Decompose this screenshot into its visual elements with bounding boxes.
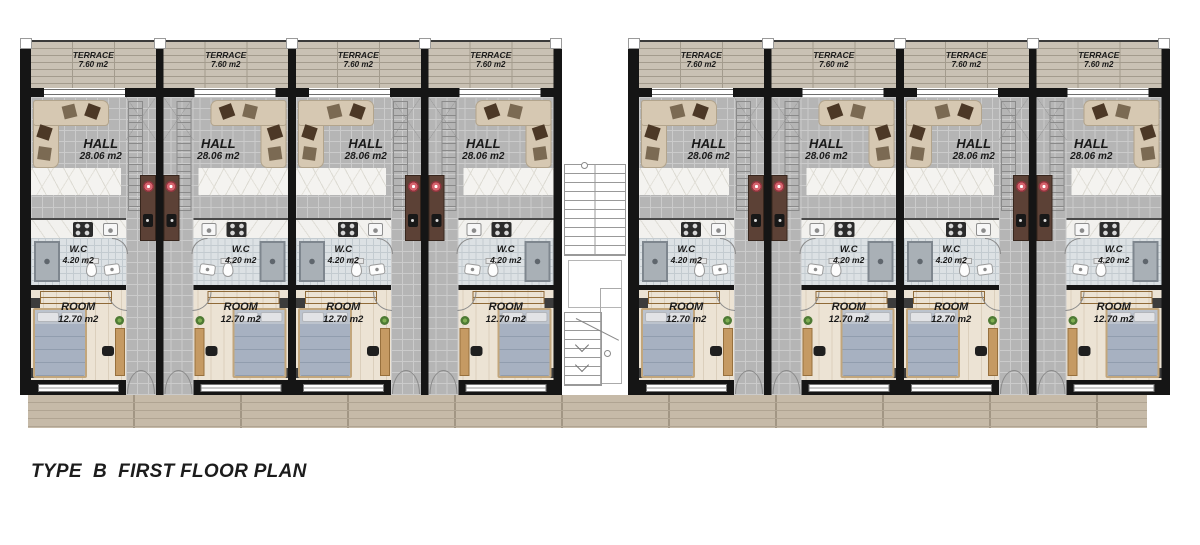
bar-stool-icon <box>166 181 177 192</box>
hall-rug <box>806 168 896 195</box>
sink-icon <box>368 223 383 236</box>
terrace-sliding-door <box>652 89 733 95</box>
washbasin-icon <box>464 263 481 276</box>
terrace-sliding-door <box>309 89 390 95</box>
unit-graphics <box>296 40 421 395</box>
nightstand <box>279 298 288 308</box>
nightstand <box>296 298 305 308</box>
pillow-icon <box>326 312 348 322</box>
column-marker <box>20 38 32 49</box>
bar-chair-icon <box>432 214 442 227</box>
bed <box>840 308 894 378</box>
wardrobe <box>40 291 112 304</box>
door-arc <box>801 292 820 311</box>
door-arc <box>127 370 141 394</box>
sink-icon <box>467 223 482 236</box>
desk <box>1068 328 1078 376</box>
pillow-icon <box>645 312 667 322</box>
column-marker <box>1027 38 1039 49</box>
door-arc <box>430 370 444 394</box>
pillow-icon <box>844 312 866 322</box>
door-arc <box>373 292 392 311</box>
sink-icon <box>1075 223 1090 236</box>
door-arc <box>735 370 749 394</box>
door-arc <box>1065 238 1081 254</box>
wall <box>802 380 897 395</box>
blanket <box>908 324 958 376</box>
bar-stool-icon <box>774 181 785 192</box>
wall <box>1148 88 1161 97</box>
door-arc <box>716 292 735 311</box>
bar-counter <box>1013 175 1029 241</box>
door-arc <box>1014 370 1028 394</box>
kitchen-counter <box>1067 218 1162 238</box>
blanket <box>842 324 892 376</box>
nightstand <box>639 298 648 308</box>
cushion-icon <box>302 146 317 161</box>
sink-icon <box>103 223 118 236</box>
door-arc <box>112 238 128 254</box>
wc-area <box>802 238 897 285</box>
terrace-area <box>31 40 156 88</box>
nightstand <box>904 298 913 308</box>
desk <box>115 328 125 376</box>
terrace-sliding-door <box>195 89 276 95</box>
wc-area <box>31 238 126 285</box>
door-arc <box>406 370 420 394</box>
washbasin-icon <box>711 263 728 276</box>
wardrobe <box>472 291 544 304</box>
kitchen-counter <box>459 218 554 238</box>
pillow-icon <box>501 312 523 322</box>
stove-icon <box>338 222 358 237</box>
column-marker <box>286 38 298 49</box>
wc-area <box>296 238 391 285</box>
window <box>646 384 727 392</box>
sofa <box>473 100 551 170</box>
hall-rug <box>639 168 729 195</box>
wall <box>639 380 734 395</box>
door-arc <box>800 238 816 254</box>
door-arc <box>141 370 155 394</box>
bedroom-area <box>459 290 554 380</box>
door-arc <box>377 238 393 254</box>
bar-stool-icon <box>143 181 154 192</box>
wall <box>459 380 554 395</box>
bar-stool-icon <box>751 181 762 192</box>
unit-graphics <box>164 40 289 395</box>
terrace-area <box>1037 40 1162 88</box>
kitchen-counter <box>31 218 126 238</box>
bedroom-area <box>296 290 391 380</box>
unit-7: TERRACE 7.60 m2 HALL 28.06 m2 W.C 4.20 m… <box>896 40 1029 395</box>
wc-area <box>639 238 734 285</box>
plant-icon <box>988 316 997 325</box>
hall-rug <box>31 168 121 195</box>
door-arc <box>720 238 736 254</box>
stove-icon <box>946 222 966 237</box>
pillow-icon <box>669 312 691 322</box>
door-arc <box>392 370 406 394</box>
washbasin-icon <box>103 263 120 276</box>
wardrobe <box>648 291 720 304</box>
wall <box>31 88 44 97</box>
sofa <box>1081 100 1159 170</box>
toilet-icon <box>694 262 705 277</box>
blanket <box>35 324 85 376</box>
terrace-sliding-door <box>460 89 541 95</box>
wall <box>1037 88 1068 97</box>
sofa <box>298 100 376 170</box>
plant-icon <box>461 316 470 325</box>
bar-counter <box>748 175 764 241</box>
nightstand <box>887 298 896 308</box>
plan-title: TYPE B FIRST FLOOR PLAN <box>31 461 307 483</box>
kitchen-counter <box>904 218 999 238</box>
stove-icon <box>681 222 701 237</box>
stair-post-icon <box>581 162 588 169</box>
door-arc <box>787 370 801 394</box>
kitchen-counter <box>296 218 391 238</box>
blanket <box>643 324 693 376</box>
wall <box>904 88 917 97</box>
toilet-icon <box>959 262 970 277</box>
washbasin-icon <box>807 263 824 276</box>
stove-icon <box>73 222 93 237</box>
wardrobe <box>913 291 985 304</box>
pillow-icon <box>260 312 282 322</box>
window <box>201 384 282 392</box>
stove-icon <box>834 222 854 237</box>
column-marker <box>762 38 774 49</box>
blanket <box>1107 324 1157 376</box>
desk-chair <box>710 346 722 356</box>
plant-icon <box>723 316 732 325</box>
door-arc <box>981 292 1000 311</box>
door-arc <box>749 370 763 394</box>
pillow-icon <box>37 312 59 322</box>
wall <box>639 88 652 97</box>
bar-chair-icon <box>1040 214 1050 227</box>
terrace-area <box>164 40 289 88</box>
bed <box>33 308 87 378</box>
washbasin-icon <box>976 263 993 276</box>
desk-chair <box>471 346 483 356</box>
desk-chair <box>814 346 826 356</box>
stair-post-icon <box>604 350 611 357</box>
pillow-icon <box>1133 312 1155 322</box>
bar-chair-icon <box>408 214 418 227</box>
wall <box>429 88 460 97</box>
bar-chair-icon <box>1016 214 1026 227</box>
cushion-icon <box>532 146 547 161</box>
kitchen-counter <box>802 218 897 238</box>
sofa <box>906 100 984 170</box>
sofa <box>33 100 111 170</box>
wall <box>883 88 896 97</box>
unit-graphics <box>429 40 554 395</box>
bar-counter <box>429 175 445 241</box>
washbasin-icon <box>1072 263 1089 276</box>
wall <box>904 380 999 395</box>
column-marker <box>419 38 431 49</box>
plant-icon <box>1069 316 1078 325</box>
terrace-sliding-door <box>44 89 125 95</box>
toilet-icon <box>86 262 97 277</box>
terrace-sliding-door <box>1068 89 1149 95</box>
left-block: TERRACE 7.60 m2 HALL 28.06 m2 W.C 4.20 m… <box>20 40 562 395</box>
shower <box>524 241 550 282</box>
plant-icon <box>804 316 813 325</box>
shower <box>867 241 893 282</box>
wall <box>31 380 126 395</box>
sofa <box>208 100 286 170</box>
desk <box>460 328 470 376</box>
right-block: TERRACE 7.60 m2 HALL 28.06 m2 W.C 4.20 m… <box>628 40 1170 395</box>
wall <box>275 88 288 97</box>
bed <box>1105 308 1159 378</box>
wardrobe <box>1080 291 1152 304</box>
bar-chair-icon <box>167 214 177 227</box>
unit-graphics <box>772 40 897 395</box>
desk <box>723 328 733 376</box>
bed <box>906 308 960 378</box>
terrace-sliding-door <box>803 89 884 95</box>
cushion-icon <box>910 146 925 161</box>
terrace-sliding-door <box>917 89 998 95</box>
desk-chair <box>367 346 379 356</box>
corridor-area <box>734 97 764 395</box>
door-arc <box>444 370 458 394</box>
wc-area <box>459 238 554 285</box>
door-arc <box>193 292 212 311</box>
window <box>38 384 119 392</box>
bar-counter <box>405 175 421 241</box>
bed <box>298 308 352 378</box>
bedroom-area <box>904 290 999 380</box>
door-arc <box>773 370 787 394</box>
pillow-icon <box>236 312 258 322</box>
door-arc <box>457 238 473 254</box>
corridor-area <box>126 97 156 395</box>
sink-icon <box>202 223 217 236</box>
bedroom-area <box>31 290 126 380</box>
desk-chair <box>206 346 218 356</box>
sink-icon <box>711 223 726 236</box>
cushion-icon <box>1140 146 1155 161</box>
sink-icon <box>810 223 825 236</box>
door-arc <box>179 370 193 394</box>
washbasin-icon <box>368 263 385 276</box>
desk-chair <box>975 346 987 356</box>
shower <box>642 241 668 282</box>
window <box>911 384 992 392</box>
blanket <box>234 324 284 376</box>
desk <box>195 328 205 376</box>
wc-area <box>1067 238 1162 285</box>
rear-deck <box>28 395 1147 428</box>
window <box>303 384 384 392</box>
bedroom-area <box>1067 290 1162 380</box>
washbasin-icon <box>199 263 216 276</box>
terrace-area <box>296 40 421 88</box>
bar-stool-icon <box>1039 181 1050 192</box>
wall <box>1067 380 1162 395</box>
toilet-icon <box>351 262 362 277</box>
bar-stool-icon <box>1016 181 1027 192</box>
unit-graphics <box>639 40 764 395</box>
bar-counter <box>164 175 180 241</box>
unit-8: TERRACE 7.60 m2 HALL 28.06 m2 W.C 4.20 m… <box>1029 40 1162 395</box>
shower <box>299 241 325 282</box>
kitchen-counter <box>194 218 289 238</box>
kitchen-counter <box>639 218 734 238</box>
door-arc <box>165 370 179 394</box>
unit-graphics <box>904 40 1029 395</box>
cushion-icon <box>267 146 282 161</box>
wall <box>125 88 156 97</box>
pillow-icon <box>302 312 324 322</box>
stove-icon <box>1099 222 1119 237</box>
corridor-area <box>429 97 459 395</box>
unit-5: TERRACE 7.60 m2 HALL 28.06 m2 W.C 4.20 m… <box>639 40 764 395</box>
corridor-area <box>772 97 802 395</box>
corridor-area <box>999 97 1029 395</box>
column-marker <box>550 38 562 49</box>
bar-chair-icon <box>775 214 785 227</box>
toilet-icon <box>488 262 499 277</box>
shower <box>1132 241 1158 282</box>
wc-area <box>904 238 999 285</box>
bar-chair-icon <box>751 214 761 227</box>
unit-3: TERRACE 7.60 m2 HALL 28.06 m2 W.C 4.20 m… <box>288 40 421 395</box>
pillow-icon <box>910 312 932 322</box>
cushion-icon <box>875 146 890 161</box>
bar-chair-icon <box>143 214 153 227</box>
wall <box>390 88 421 97</box>
desk-chair <box>1079 346 1091 356</box>
terrace-area <box>904 40 1029 88</box>
wall <box>296 380 391 395</box>
hall-rug <box>904 168 994 195</box>
desk <box>988 328 998 376</box>
shower <box>259 241 285 282</box>
sofa <box>641 100 719 170</box>
column-marker <box>154 38 166 49</box>
plant-icon <box>196 316 205 325</box>
nightstand <box>544 298 553 308</box>
wall <box>540 88 553 97</box>
bar-stool-icon <box>431 181 442 192</box>
bed <box>641 308 695 378</box>
sofa <box>816 100 894 170</box>
toilet-icon <box>831 262 842 277</box>
wall <box>998 88 1029 97</box>
column-marker <box>628 38 640 49</box>
wardrobe <box>815 291 887 304</box>
unit-graphics <box>31 40 156 395</box>
desk-chair <box>102 346 114 356</box>
hall-rug <box>198 168 288 195</box>
door-arc <box>192 238 208 254</box>
toilet-icon <box>223 262 234 277</box>
terrace-area <box>429 40 554 88</box>
bar-counter <box>772 175 788 241</box>
door-arc <box>985 238 1001 254</box>
wall <box>296 88 309 97</box>
column-marker <box>894 38 906 49</box>
stair-flight <box>564 164 626 256</box>
hall-rug <box>463 168 553 195</box>
toilet-icon <box>1096 262 1107 277</box>
bar-stool-icon <box>408 181 419 192</box>
pillow-icon <box>934 312 956 322</box>
bedroom-area <box>639 290 734 380</box>
floor-plan-canvas: TERRACE 7.60 m2 HALL 28.06 m2 W.C 4.20 m… <box>0 0 1200 545</box>
sink-icon <box>976 223 991 236</box>
stove-icon <box>491 222 511 237</box>
desk <box>380 328 390 376</box>
column-marker <box>1158 38 1170 49</box>
plant-icon <box>380 316 389 325</box>
wardrobe <box>207 291 279 304</box>
bar-counter <box>140 175 156 241</box>
wardrobe <box>305 291 377 304</box>
unit-graphics <box>1037 40 1162 395</box>
pillow-icon <box>1109 312 1131 322</box>
shower <box>34 241 60 282</box>
bar-counter <box>1037 175 1053 241</box>
bedroom-area <box>194 290 289 380</box>
desk <box>803 328 813 376</box>
bed <box>497 308 551 378</box>
corridor-area <box>391 97 421 395</box>
blanket <box>499 324 549 376</box>
hall-rug <box>296 168 386 195</box>
stove-icon <box>226 222 246 237</box>
shower <box>907 241 933 282</box>
bedroom-area <box>802 290 897 380</box>
cushion-icon <box>37 146 52 161</box>
terrace-area <box>772 40 897 88</box>
blanket <box>300 324 350 376</box>
wall <box>164 88 195 97</box>
cushion-icon <box>645 146 660 161</box>
wc-area <box>194 238 289 285</box>
wall <box>733 88 764 97</box>
nightstand <box>31 298 40 308</box>
corridor-area <box>164 97 194 395</box>
unit-6: TERRACE 7.60 m2 HALL 28.06 m2 W.C 4.20 m… <box>764 40 897 395</box>
door-arc <box>1066 292 1085 311</box>
unit-2: TERRACE 7.60 m2 HALL 28.06 m2 W.C 4.20 m… <box>156 40 289 395</box>
pillow-icon <box>61 312 83 322</box>
central-staircase <box>562 160 628 395</box>
corridor-area <box>1037 97 1067 395</box>
unit-4: TERRACE 7.60 m2 HALL 28.06 m2 W.C 4.20 m… <box>421 40 554 395</box>
hall-rug <box>1071 168 1161 195</box>
window <box>1074 384 1155 392</box>
door-arc <box>458 292 477 311</box>
door-arc <box>108 292 127 311</box>
wall <box>772 88 803 97</box>
nightstand <box>1152 298 1161 308</box>
door-arc <box>1000 370 1014 394</box>
door-arc <box>1052 370 1066 394</box>
window <box>466 384 547 392</box>
wall <box>194 380 289 395</box>
unit-1: TERRACE 7.60 m2 HALL 28.06 m2 W.C 4.20 m… <box>31 40 156 395</box>
